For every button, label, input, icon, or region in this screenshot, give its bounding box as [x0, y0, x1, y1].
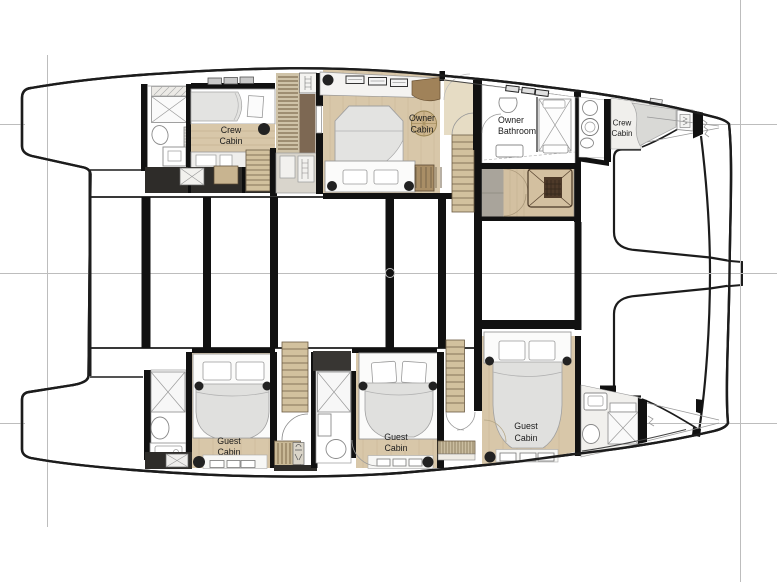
svg-text:Cabin: Cabin [220, 136, 243, 146]
svg-text:Bathroom: Bathroom [498, 126, 536, 136]
svg-text:Crew: Crew [221, 125, 242, 135]
svg-text:Cabin: Cabin [411, 125, 434, 135]
svg-text:Cabin: Cabin [385, 443, 408, 453]
svg-text:Owner: Owner [409, 113, 435, 123]
svg-text:Cabin: Cabin [515, 433, 538, 443]
svg-text:Owner: Owner [498, 115, 524, 125]
svg-text:Guest: Guest [514, 421, 538, 431]
svg-text:Cabin: Cabin [612, 129, 633, 138]
svg-text:Guest: Guest [384, 432, 408, 442]
svg-text:Crew: Crew [613, 119, 632, 128]
svg-text:Guest: Guest [217, 436, 241, 446]
